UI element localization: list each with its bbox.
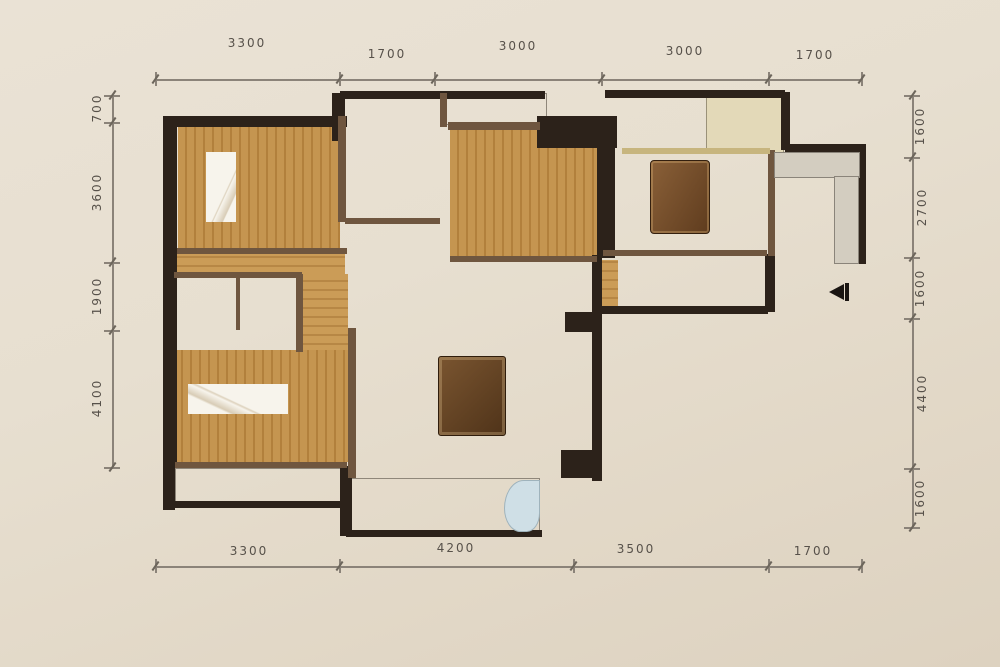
- dim-label: 1700: [780, 48, 850, 62]
- kitchen-counter: [834, 176, 859, 264]
- city-sketch: [0, 180, 46, 330]
- entry-mat: [612, 260, 762, 306]
- kitchen-island: [778, 184, 830, 252]
- city-sketch: [0, 330, 42, 525]
- dim-label: 1700: [352, 47, 422, 61]
- wall: [348, 328, 356, 478]
- bath-partition: [236, 278, 240, 330]
- bedroom1-floor: [178, 116, 340, 252]
- utility-platform: [613, 96, 645, 152]
- wall: [603, 250, 767, 256]
- dim-line-top: [155, 79, 862, 81]
- wall: [561, 450, 593, 478]
- dim-label: 1600: [913, 268, 927, 308]
- sill: [622, 148, 770, 154]
- dim-label: 4400: [915, 373, 929, 413]
- dim-label: 4100: [90, 378, 104, 418]
- dim-label: 1700: [778, 544, 848, 558]
- dim-label: 3000: [481, 39, 555, 53]
- floorplan: A二C A二C: [0, 663, 1000, 667]
- city-sketch: [0, 525, 30, 663]
- dim-label: 2700: [915, 187, 929, 227]
- dim-label: 700: [90, 88, 104, 128]
- wall: [592, 255, 602, 481]
- wall: [172, 501, 348, 508]
- balcony1-floor: [175, 468, 347, 504]
- wall: [177, 248, 347, 254]
- water-feature: [504, 480, 540, 532]
- dim-line-bottom: [155, 566, 862, 568]
- dim-line-left: [112, 95, 114, 467]
- dim-label: 3500: [598, 542, 674, 556]
- kitchen-counter: [774, 152, 860, 178]
- wall: [163, 116, 347, 127]
- wall: [440, 93, 447, 127]
- bath1-floor: [345, 158, 437, 220]
- dim-label: 3600: [90, 172, 104, 212]
- entry-arrow-bar: [845, 283, 849, 301]
- floorplan-photo: 3300 1700 3000 3000 1700 3300 4200 3500 …: [0, 0, 1000, 667]
- wall: [765, 254, 775, 312]
- wall: [448, 122, 540, 130]
- dim-label: 3300: [210, 36, 284, 50]
- hall-floor: [300, 274, 348, 352]
- plant-icon: [0, 663, 26, 667]
- wardrobe: [174, 332, 300, 350]
- dining-table: [650, 160, 710, 234]
- wall: [597, 120, 615, 258]
- city-sketch: [0, 0, 38, 180]
- bed-blanket-fold: [188, 384, 288, 414]
- wall: [600, 306, 768, 314]
- wall: [565, 312, 595, 332]
- hall-floor: [177, 254, 345, 274]
- flowerbed: [706, 94, 784, 154]
- wall: [781, 92, 790, 150]
- dim-label: 3300: [212, 544, 286, 558]
- wardrobe: [497, 238, 595, 254]
- wall: [175, 462, 347, 468]
- foyer-floor: [348, 222, 440, 262]
- dim-label: 1600: [913, 478, 927, 518]
- bed-blanket-fold: [206, 152, 236, 222]
- wall: [345, 218, 440, 224]
- entry-arrow-icon: [829, 284, 844, 300]
- wall: [338, 116, 346, 222]
- wall: [346, 530, 542, 537]
- bedroom1-baywindow: [235, 100, 345, 117]
- wall: [605, 90, 785, 98]
- dim-label: 4200: [418, 541, 494, 555]
- dim-label: 1600: [913, 106, 927, 146]
- bath1-shower: [348, 128, 436, 158]
- dim-label: 3000: [648, 44, 722, 58]
- wall: [785, 144, 863, 152]
- dim-label: 1900: [90, 276, 104, 316]
- wall: [296, 274, 303, 352]
- wall: [450, 256, 597, 262]
- coffee-table: [438, 356, 506, 436]
- wall: [163, 116, 177, 468]
